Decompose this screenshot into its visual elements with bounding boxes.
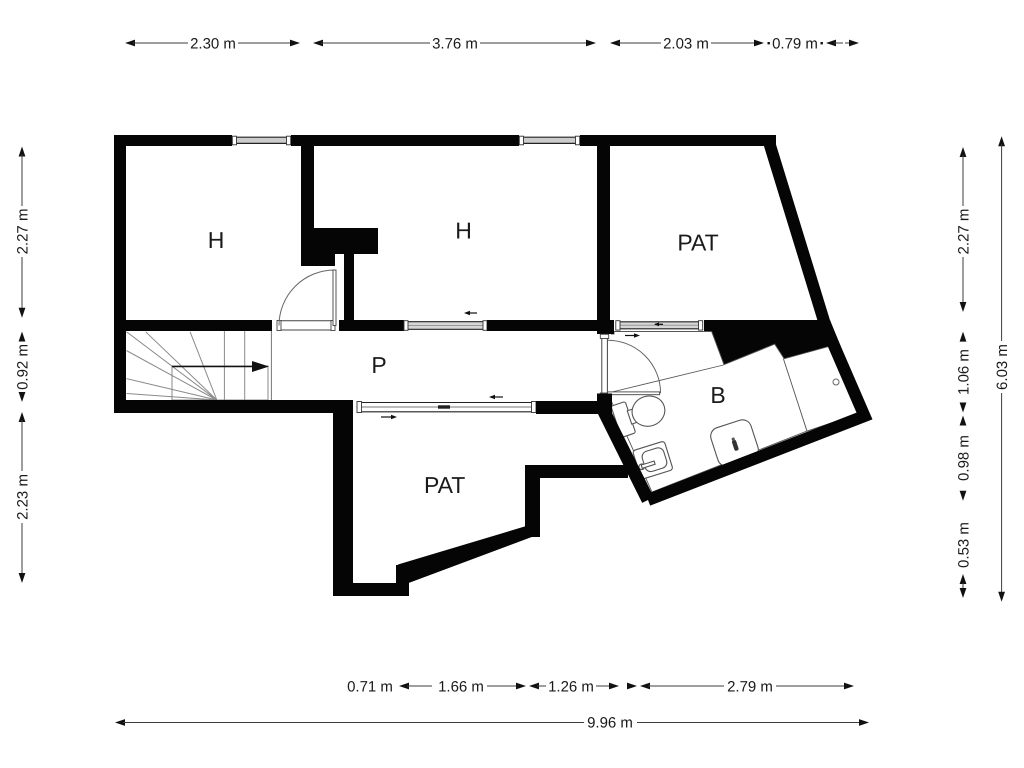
svg-text:1.06 m: 1.06 m: [955, 349, 972, 395]
svg-text:1.26 m: 1.26 m: [548, 679, 594, 696]
svg-text:B: B: [710, 382, 725, 408]
svg-text:2.79 m: 2.79 m: [727, 679, 773, 696]
svg-text:2.27 m: 2.27 m: [14, 209, 31, 255]
svg-text:6.03 m: 6.03 m: [994, 344, 1011, 390]
svg-text:2.27 m: 2.27 m: [955, 209, 972, 255]
svg-text:P: P: [371, 352, 386, 378]
svg-text:2.03 m: 2.03 m: [663, 36, 709, 53]
svg-text:H: H: [208, 227, 225, 253]
svg-text:0.53 m: 0.53 m: [955, 522, 972, 568]
svg-text:0.79 m: 0.79 m: [772, 36, 818, 53]
svg-text:3.76 m: 3.76 m: [432, 36, 478, 53]
svg-text:PAT: PAT: [424, 472, 465, 498]
svg-text:0.71 m: 0.71 m: [347, 679, 393, 696]
svg-text:0.92 m: 0.92 m: [14, 344, 31, 390]
svg-text:2.23 m: 2.23 m: [14, 474, 31, 520]
svg-text:0.98 m: 0.98 m: [955, 435, 972, 481]
svg-text:9.96 m: 9.96 m: [587, 715, 633, 732]
svg-text:H: H: [455, 218, 472, 244]
svg-text:1.66 m: 1.66 m: [438, 679, 484, 696]
svg-text:2.30 m: 2.30 m: [190, 36, 236, 53]
svg-text:PAT: PAT: [677, 230, 718, 256]
